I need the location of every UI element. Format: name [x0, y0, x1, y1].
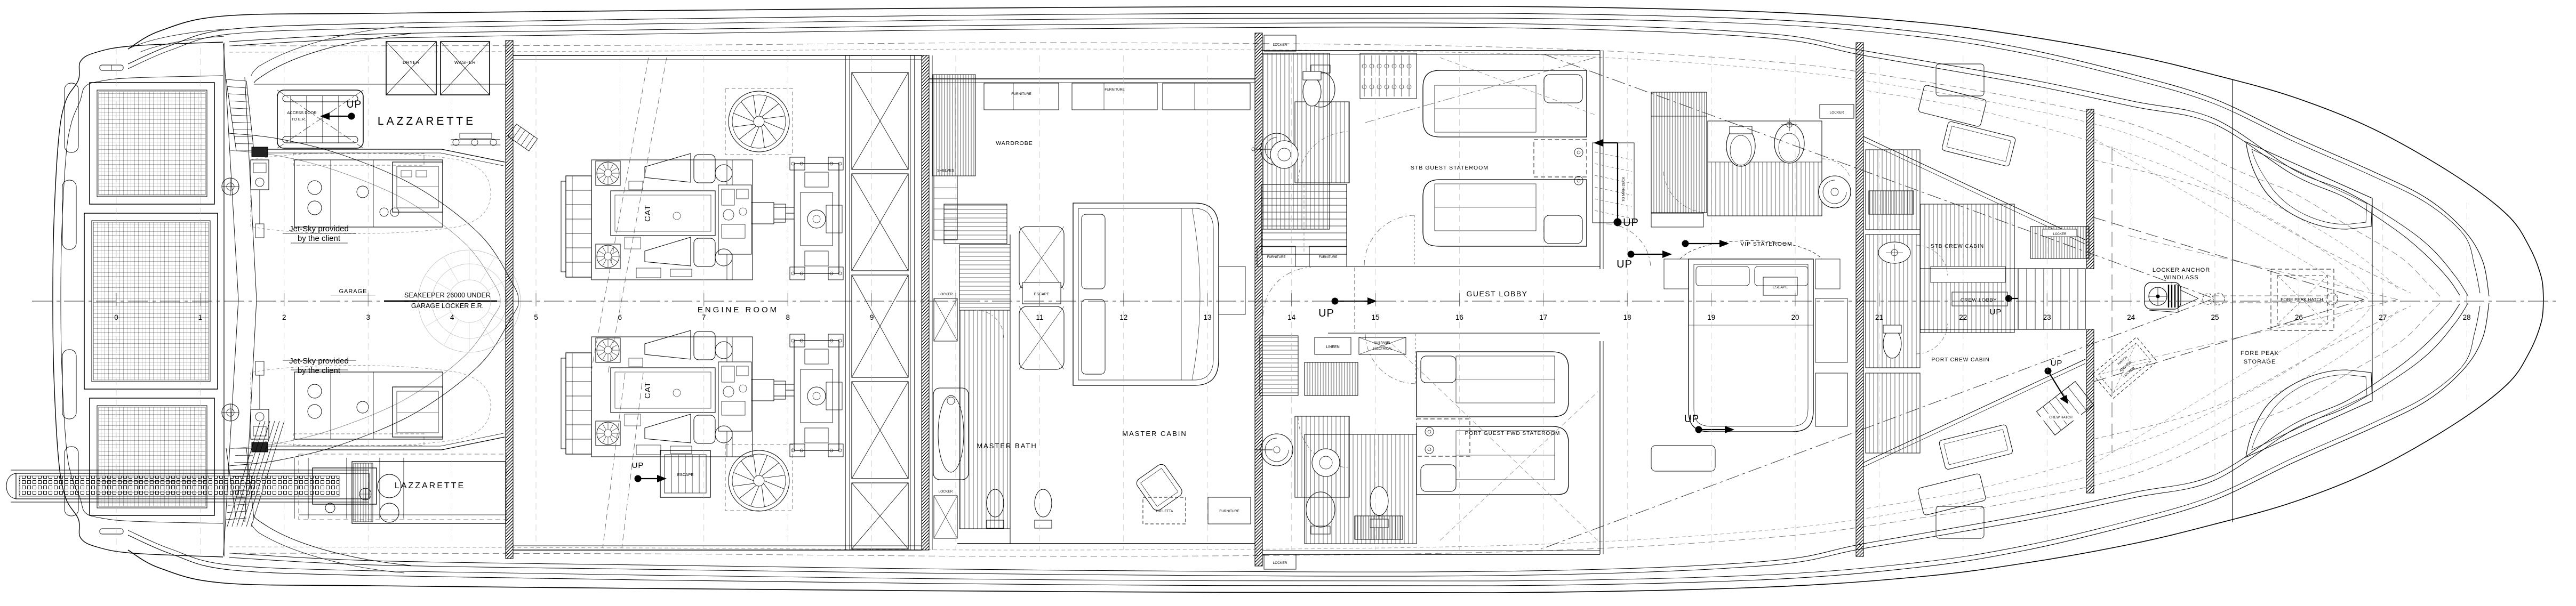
svg-text:SUBPANEL: SUBPANEL — [1374, 342, 1391, 345]
svg-text:23: 23 — [2043, 313, 2051, 321]
svg-text:TO MAIN DECK: TO MAIN DECK — [1622, 176, 1626, 201]
svg-text:17: 17 — [1539, 313, 1547, 321]
svg-text:UP: UP — [2051, 359, 2063, 368]
svg-text:WASHER: WASHER — [454, 60, 476, 65]
svg-text:21: 21 — [1875, 313, 1883, 321]
svg-text:STORAGE: STORAGE — [2244, 359, 2276, 365]
svg-text:FURNITURE: FURNITURE — [1319, 256, 1338, 259]
svg-text:SEAKEEPER 26000 UNDER: SEAKEEPER 26000 UNDER — [404, 292, 491, 299]
svg-text:9: 9 — [870, 313, 874, 321]
svg-text:GUEST LOBBY: GUEST LOBBY — [1466, 289, 1527, 298]
svg-text:MASTER BATH: MASTER BATH — [977, 442, 1037, 450]
svg-text:DRYER: DRYER — [403, 60, 420, 65]
svg-text:3: 3 — [366, 313, 370, 321]
svg-text:UP: UP — [1318, 308, 1334, 319]
svg-text:4: 4 — [450, 313, 454, 321]
svg-text:WARDROBE: WARDROBE — [996, 140, 1033, 147]
svg-text:0: 0 — [114, 313, 118, 321]
svg-text:LOCKER: LOCKER — [2053, 233, 2067, 236]
svg-text:UP: UP — [1684, 414, 1699, 425]
svg-text:13: 13 — [1204, 313, 1212, 321]
svg-text:LOCKER: LOCKER — [1273, 561, 1287, 565]
svg-text:PORT GUEST FWD STATEROOM: PORT GUEST FWD STATEROOM — [1465, 431, 1561, 437]
svg-text:11: 11 — [1036, 313, 1043, 321]
svg-text:12: 12 — [1119, 313, 1127, 321]
svg-text:STB GUEST STATEROOM: STB GUEST STATEROOM — [1411, 165, 1489, 171]
svg-text:FORE PEAK HATCH: FORE PEAK HATCH — [2281, 297, 2323, 302]
svg-text:26: 26 — [2295, 313, 2303, 321]
svg-text:TOELETTA: TOELETTA — [1156, 510, 1174, 513]
svg-text:VIP STATEROOM: VIP STATEROOM — [1740, 241, 1793, 247]
svg-text:8: 8 — [786, 313, 790, 321]
svg-text:UP: UP — [1623, 217, 1639, 229]
svg-text:FURNITURE: FURNITURE — [1011, 92, 1031, 96]
svg-text:TO E.R.: TO E.R. — [292, 117, 306, 122]
svg-text:LOCKER ANCHOR: LOCKER ANCHOR — [2153, 267, 2210, 273]
svg-text:CREW HATCH: CREW HATCH — [2049, 416, 2073, 419]
svg-text:LOCKER: LOCKER — [939, 490, 953, 494]
svg-text:FURNITURE: FURNITURE — [1267, 256, 1286, 259]
svg-text:PORT CREW CABIN: PORT CREW CABIN — [1931, 357, 1989, 363]
svg-text:LOCKER: LOCKER — [1830, 111, 1844, 115]
svg-text:24: 24 — [2127, 313, 2135, 321]
svg-text:UP: UP — [632, 461, 644, 470]
svg-text:1: 1 — [198, 313, 203, 321]
svg-text:Jet-Sky provided: Jet-Sky provided — [289, 224, 349, 233]
svg-text:WINDLASS: WINDLASS — [2164, 274, 2198, 281]
svg-text:19: 19 — [1707, 313, 1715, 321]
svg-text:FURNITURE: FURNITURE — [1105, 88, 1125, 92]
svg-text:15: 15 — [1371, 313, 1379, 321]
svg-text:27: 27 — [2379, 313, 2387, 321]
svg-text:LOCKER: LOCKER — [939, 293, 953, 296]
svg-text:UP: UP — [1617, 258, 1633, 270]
svg-text:ESCAPE: ESCAPE — [1034, 293, 1050, 296]
svg-text:14: 14 — [1287, 313, 1296, 321]
svg-text:MASTER CABIN: MASTER CABIN — [1122, 430, 1187, 438]
svg-text:GARAGE LOCKER E.R.: GARAGE LOCKER E.R. — [411, 302, 484, 310]
svg-text:ESCAPE: ESCAPE — [677, 472, 693, 477]
svg-text:25: 25 — [2211, 313, 2219, 321]
svg-text:ENGINE ROOM: ENGINE ROOM — [698, 305, 779, 314]
svg-text:2: 2 — [282, 313, 286, 321]
svg-text:LAZZARETTE: LAZZARETTE — [395, 481, 465, 490]
svg-text:16: 16 — [1455, 313, 1463, 321]
svg-text:20: 20 — [1791, 313, 1799, 321]
svg-text:GARAGE: GARAGE — [339, 288, 367, 295]
svg-text:LOCKER: LOCKER — [1273, 43, 1287, 47]
svg-text:5: 5 — [534, 313, 538, 321]
svg-text:by the client: by the client — [298, 234, 341, 243]
svg-text:7: 7 — [702, 313, 706, 321]
svg-text:22: 22 — [1959, 313, 1967, 321]
svg-text:UP: UP — [347, 99, 362, 110]
svg-text:FURNITURE: FURNITURE — [1219, 510, 1239, 513]
svg-text:ESCAPE: ESCAPE — [1773, 286, 1788, 289]
svg-text:Jet-Sky provided: Jet-Sky provided — [289, 357, 349, 366]
svg-text:LAZZARETTE: LAZZARETTE — [378, 115, 476, 127]
svg-text:by the client: by the client — [298, 366, 341, 375]
svg-text:ACCESS DOOR: ACCESS DOOR — [287, 110, 317, 115]
svg-text:CAT: CAT — [643, 205, 652, 222]
svg-text:18: 18 — [1623, 313, 1631, 321]
svg-text:CAT: CAT — [643, 382, 652, 399]
svg-text:28: 28 — [2463, 313, 2471, 321]
svg-text:LINEEN: LINEEN — [1326, 345, 1339, 349]
svg-text:6: 6 — [618, 313, 622, 321]
